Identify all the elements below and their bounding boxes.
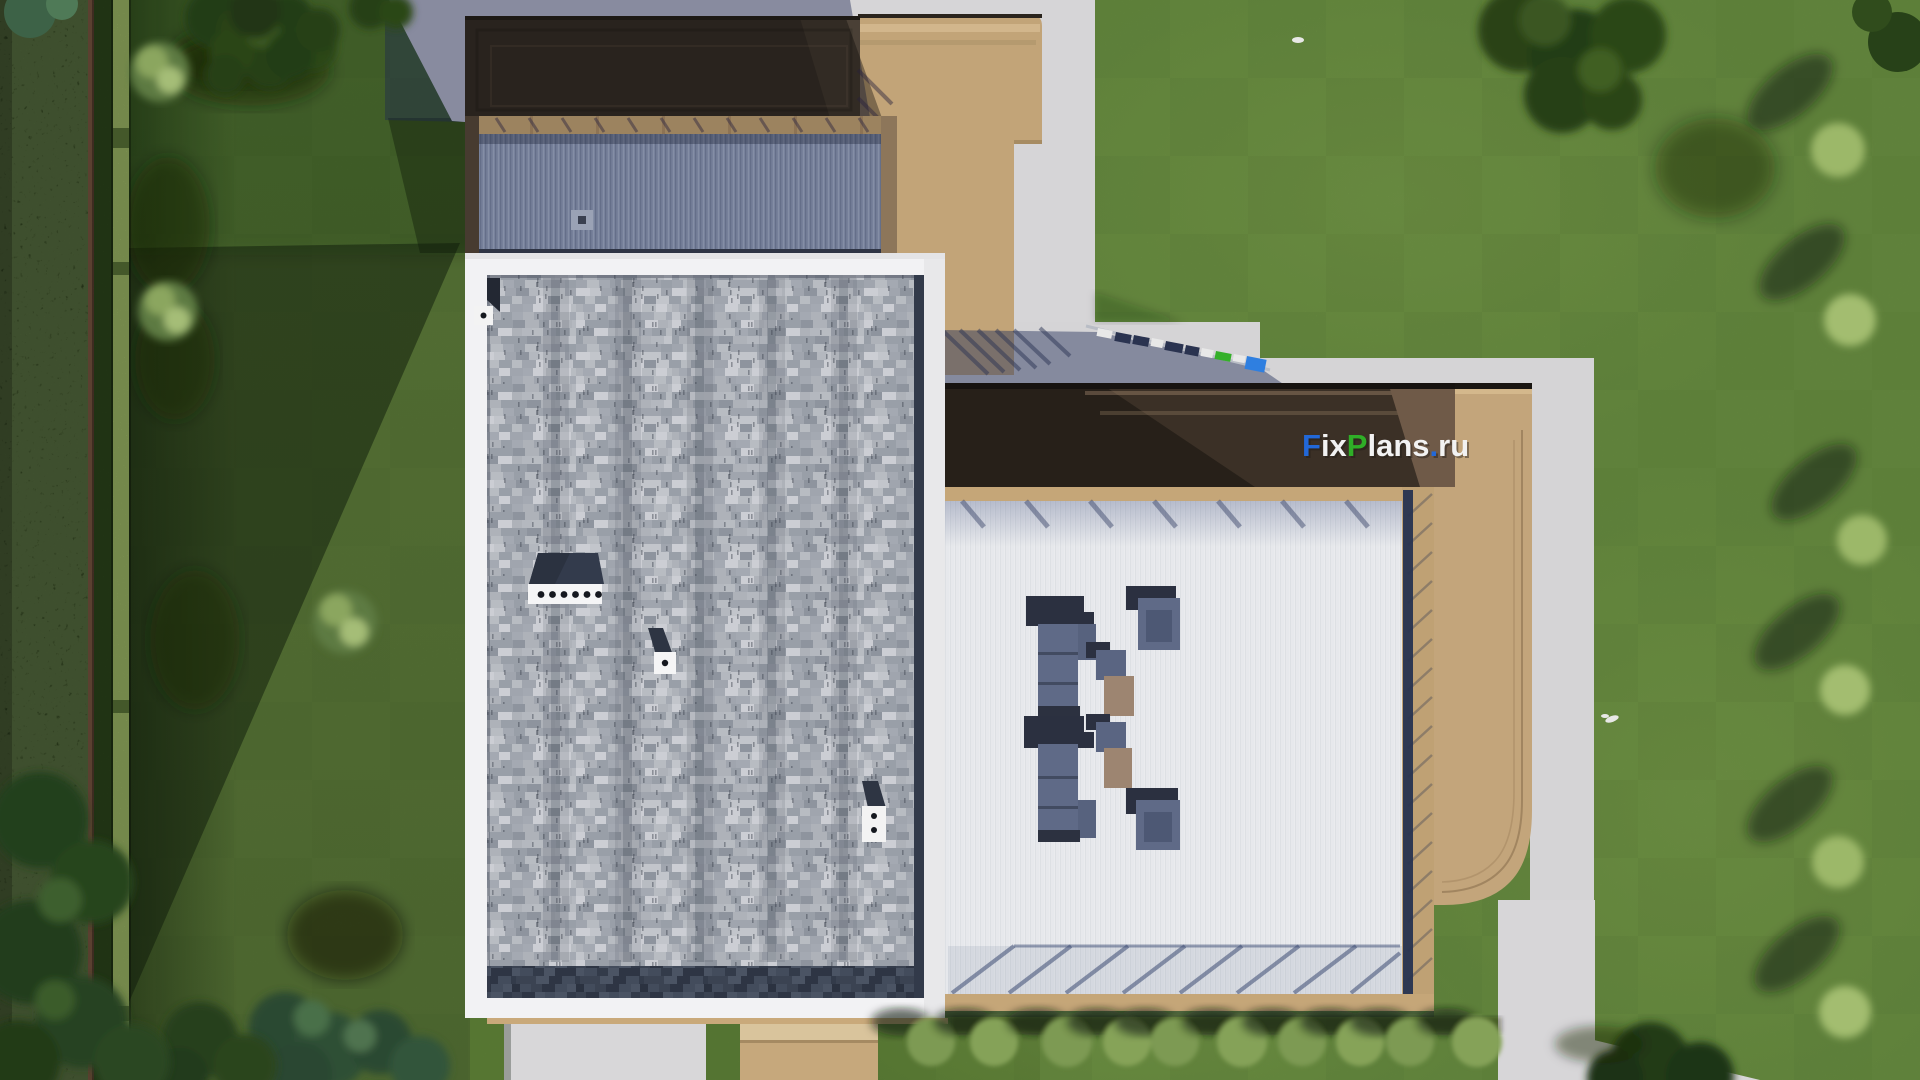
svg-text:FixPlans.ru: FixPlans.ru: [1302, 428, 1469, 463]
